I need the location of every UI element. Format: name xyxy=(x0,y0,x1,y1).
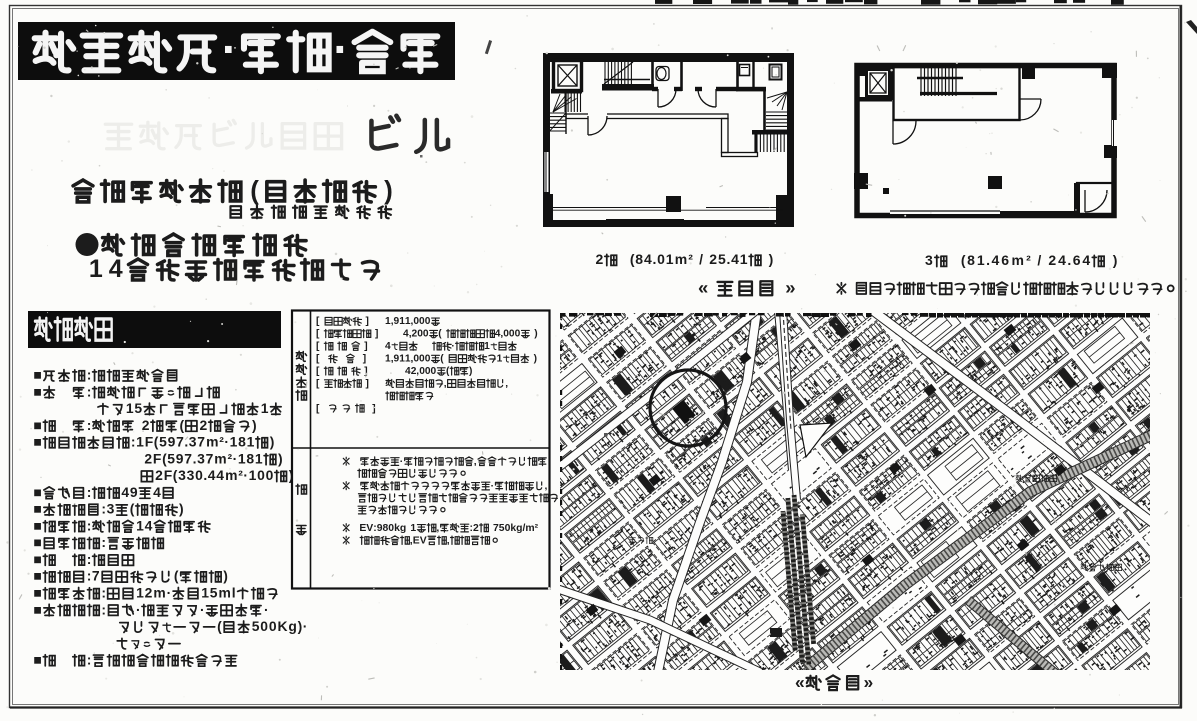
svg-text:m: m xyxy=(153,585,165,601)
svg-text:■: ■ xyxy=(33,601,41,617)
svg-text:(: ( xyxy=(217,618,222,634)
svg-text:1: 1 xyxy=(497,354,503,365)
svg-text:1: 1 xyxy=(136,434,144,450)
svg-text:(: ( xyxy=(154,434,159,450)
svg-text:]: ] xyxy=(366,316,369,327)
svg-text:): ) xyxy=(278,450,283,466)
svg-text:1: 1 xyxy=(261,400,269,416)
svg-text:m: m xyxy=(1012,252,1024,268)
svg-text:1: 1 xyxy=(136,585,144,601)
svg-text:■: ■ xyxy=(33,484,41,500)
svg-text:0: 0 xyxy=(657,251,665,267)
svg-text:): ) xyxy=(534,354,537,365)
svg-text:1: 1 xyxy=(977,252,985,268)
svg-text:7: 7 xyxy=(92,568,100,584)
svg-text:0: 0 xyxy=(425,354,431,365)
svg-text:■: ■ xyxy=(33,367,41,383)
svg-text:9: 9 xyxy=(176,450,184,466)
svg-text:): ) xyxy=(298,618,303,634)
svg-text:·: · xyxy=(222,23,238,76)
svg-text:m: m xyxy=(206,434,218,450)
svg-text:7: 7 xyxy=(197,434,205,450)
svg-text:]: ] xyxy=(366,378,369,389)
svg-text:1: 1 xyxy=(666,251,674,267)
svg-text:»: » xyxy=(864,672,874,692)
svg-text:,: , xyxy=(447,535,450,546)
svg-text:): ) xyxy=(252,417,257,433)
svg-text:1: 1 xyxy=(136,518,144,534)
svg-text:(: ( xyxy=(174,568,179,584)
svg-text:3: 3 xyxy=(925,252,933,268)
svg-text:·: · xyxy=(200,601,205,617)
svg-text:3: 3 xyxy=(107,501,115,517)
svg-text:): ) xyxy=(534,329,537,340)
svg-text:.: . xyxy=(653,251,657,267)
svg-text:F: F xyxy=(164,467,173,483)
svg-text:8: 8 xyxy=(635,251,643,267)
svg-text:(: ( xyxy=(630,251,635,267)
svg-text:·: · xyxy=(233,450,238,466)
svg-text:·: · xyxy=(243,467,248,483)
svg-text::: : xyxy=(87,417,92,433)
svg-text:): ) xyxy=(469,366,472,377)
svg-text:4: 4 xyxy=(121,484,129,500)
svg-text:m: m xyxy=(214,450,226,466)
svg-text:2: 2 xyxy=(1048,252,1056,268)
svg-text:m: m xyxy=(225,467,237,483)
svg-text:.: . xyxy=(986,252,990,268)
svg-text:4: 4 xyxy=(145,518,153,534)
svg-text::: : xyxy=(87,383,92,399)
svg-text:■: ■ xyxy=(33,551,41,567)
svg-text:9: 9 xyxy=(130,484,138,500)
svg-text:(: ( xyxy=(440,354,444,365)
svg-text:«: « xyxy=(795,672,805,692)
svg-text::: : xyxy=(101,534,106,550)
svg-text:.: . xyxy=(1067,252,1071,268)
svg-text:■: ■ xyxy=(33,417,41,433)
svg-text:.: . xyxy=(727,251,731,267)
svg-text:0: 0 xyxy=(260,618,268,634)
svg-text:/: / xyxy=(699,251,703,267)
svg-text:7: 7 xyxy=(206,450,214,466)
svg-text::: : xyxy=(101,585,106,601)
svg-text:·: · xyxy=(224,434,229,450)
svg-text:g: g xyxy=(400,523,406,534)
svg-text:0: 0 xyxy=(266,467,274,483)
svg-text:.: . xyxy=(203,467,207,483)
svg-text:[: [ xyxy=(316,354,320,365)
svg-text:g: g xyxy=(516,523,522,534)
svg-text:5: 5 xyxy=(134,400,142,416)
svg-text:7: 7 xyxy=(184,450,192,466)
svg-text:·: · xyxy=(333,23,349,76)
svg-text:[: [ xyxy=(316,378,320,389)
svg-text:1: 1 xyxy=(247,434,255,450)
svg-text:F: F xyxy=(153,450,162,466)
svg-text:·: · xyxy=(400,456,403,467)
svg-text:(: ( xyxy=(446,366,450,377)
svg-text:g: g xyxy=(288,618,297,634)
svg-text:2: 2 xyxy=(155,467,163,483)
svg-text:4: 4 xyxy=(153,484,161,500)
svg-text:.: . xyxy=(193,450,197,466)
svg-text:(: ( xyxy=(180,417,185,433)
svg-text:1: 1 xyxy=(484,341,490,352)
svg-text:■: ■ xyxy=(33,652,41,668)
svg-text:■: ■ xyxy=(33,585,41,601)
svg-text:(: ( xyxy=(130,501,135,517)
svg-text:(: ( xyxy=(173,467,178,483)
svg-text:,: , xyxy=(436,523,439,534)
svg-text:8: 8 xyxy=(967,252,975,268)
svg-text:4: 4 xyxy=(731,251,739,267)
svg-text:«: « xyxy=(698,277,708,298)
svg-text:2: 2 xyxy=(473,523,479,534)
svg-text:]: ] xyxy=(363,354,366,365)
svg-text:4: 4 xyxy=(109,255,123,283)
svg-text:[: [ xyxy=(316,329,320,340)
svg-text:■: ■ xyxy=(33,568,41,584)
svg-text:8: 8 xyxy=(238,434,246,450)
svg-text:2: 2 xyxy=(709,251,717,267)
svg-text:5: 5 xyxy=(167,450,175,466)
svg-text:,: , xyxy=(545,481,548,492)
svg-text:(: ( xyxy=(250,175,259,205)
svg-text:0: 0 xyxy=(423,329,429,340)
svg-text:,: , xyxy=(505,378,508,389)
svg-text:): ) xyxy=(769,251,774,267)
svg-text:5: 5 xyxy=(252,618,260,634)
svg-text:]: ] xyxy=(375,329,378,340)
svg-text:·: · xyxy=(264,601,269,617)
svg-text:4: 4 xyxy=(216,467,224,483)
svg-text:·: · xyxy=(167,585,172,601)
svg-text:V: V xyxy=(420,535,427,546)
svg-text:7: 7 xyxy=(176,434,184,450)
svg-text:m: m xyxy=(525,523,534,534)
svg-text:8: 8 xyxy=(246,450,254,466)
svg-text:1: 1 xyxy=(126,400,134,416)
svg-text:·: · xyxy=(136,601,141,617)
svg-text:0: 0 xyxy=(431,366,437,377)
svg-text:E: E xyxy=(413,535,420,546)
svg-text:2: 2 xyxy=(200,417,208,433)
svg-text:m: m xyxy=(675,251,687,267)
svg-text:): ) xyxy=(223,568,228,584)
svg-text:■: ■ xyxy=(33,434,41,450)
svg-text:2: 2 xyxy=(145,585,153,601)
svg-text::: : xyxy=(87,551,92,567)
svg-text:4: 4 xyxy=(1058,252,1066,268)
svg-text:K: K xyxy=(278,618,288,634)
svg-text:9: 9 xyxy=(168,434,176,450)
svg-text:1: 1 xyxy=(410,523,416,534)
svg-text:1: 1 xyxy=(201,585,209,601)
svg-text:0: 0 xyxy=(425,316,431,327)
svg-text:): ) xyxy=(270,434,275,450)
svg-text:■: ■ xyxy=(33,518,41,534)
svg-text::: : xyxy=(101,501,106,517)
svg-text:1: 1 xyxy=(230,434,238,450)
svg-text:5: 5 xyxy=(159,434,167,450)
svg-text:3: 3 xyxy=(178,467,186,483)
svg-text:3: 3 xyxy=(187,467,195,483)
svg-text:[: [ xyxy=(316,341,320,352)
svg-text:0: 0 xyxy=(269,618,277,634)
svg-text:): ) xyxy=(179,501,184,517)
svg-text:5: 5 xyxy=(718,251,726,267)
svg-text:²: ² xyxy=(535,523,539,534)
svg-text::: : xyxy=(87,484,92,500)
svg-text:0: 0 xyxy=(515,329,521,340)
svg-text:): ) xyxy=(384,175,393,205)
svg-text:1: 1 xyxy=(255,450,263,466)
svg-text:2: 2 xyxy=(596,251,604,267)
svg-text:²: ² xyxy=(688,251,693,267)
svg-text:4: 4 xyxy=(992,252,1000,268)
svg-text:l: l xyxy=(232,585,236,601)
svg-text:1: 1 xyxy=(740,251,748,267)
svg-text:,: , xyxy=(474,456,477,467)
svg-text::: : xyxy=(87,367,92,383)
svg-text:]: ] xyxy=(364,341,367,352)
svg-text:[: [ xyxy=(316,366,320,377)
svg-text::: : xyxy=(131,434,136,450)
svg-text:1: 1 xyxy=(249,467,257,483)
svg-text:5: 5 xyxy=(210,585,218,601)
svg-text:■: ■ xyxy=(33,383,41,399)
svg-text:(: ( xyxy=(438,329,442,340)
svg-text:3: 3 xyxy=(189,434,197,450)
svg-text:■: ■ xyxy=(33,501,41,517)
svg-text::: : xyxy=(87,568,92,584)
svg-text:.: . xyxy=(184,434,188,450)
svg-text::: : xyxy=(87,518,92,534)
svg-text:4: 4 xyxy=(385,341,391,352)
svg-text:6: 6 xyxy=(1001,252,1009,268)
svg-text:m: m xyxy=(219,585,231,601)
svg-text:4: 4 xyxy=(644,251,652,267)
svg-text:(: ( xyxy=(961,252,966,268)
svg-text:2: 2 xyxy=(144,450,152,466)
svg-text:4: 4 xyxy=(208,467,216,483)
svg-text:»: » xyxy=(785,277,795,298)
svg-text:V: V xyxy=(366,523,373,534)
svg-text:1: 1 xyxy=(89,255,103,283)
svg-text:1: 1 xyxy=(238,450,246,466)
svg-text:3: 3 xyxy=(197,450,205,466)
svg-text:0: 0 xyxy=(195,467,203,483)
svg-text:0: 0 xyxy=(257,467,265,483)
svg-text:4: 4 xyxy=(1082,252,1090,268)
svg-text::: : xyxy=(101,601,106,617)
svg-text:,: , xyxy=(444,378,447,389)
svg-text:²: ² xyxy=(1026,252,1031,268)
svg-text:·: · xyxy=(451,341,454,352)
svg-text:6: 6 xyxy=(1073,252,1081,268)
svg-text:/: / xyxy=(1037,252,1041,268)
svg-text:[: [ xyxy=(316,403,320,414)
svg-text:■: ■ xyxy=(33,534,41,550)
svg-text:·: · xyxy=(491,481,494,492)
svg-text:]: ] xyxy=(372,403,375,414)
svg-text::: : xyxy=(87,652,92,668)
svg-text:·: · xyxy=(303,618,308,634)
svg-text:[: [ xyxy=(316,316,320,327)
svg-text:F: F xyxy=(145,434,154,450)
svg-text:): ) xyxy=(1113,252,1118,268)
